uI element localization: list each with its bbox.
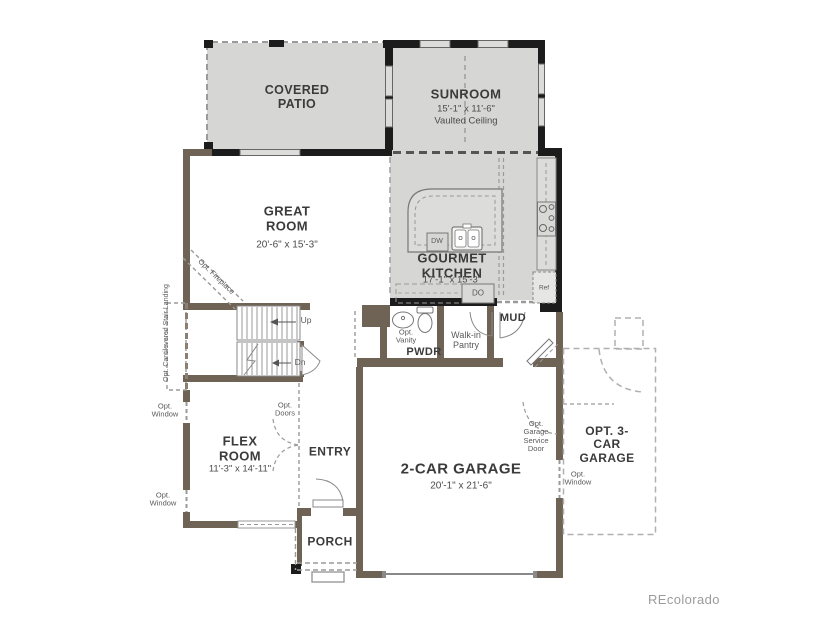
stair-dn-label: Dn xyxy=(295,358,306,368)
room-label-great-room: GREAT ROOM xyxy=(247,204,327,233)
room-label-covered-patio: COVERED PATIO xyxy=(251,83,343,111)
room-label-porch: PORCH xyxy=(307,535,352,548)
double-oven-label: DO xyxy=(472,290,484,299)
recolorado-watermark: REcolorado xyxy=(648,592,720,607)
note-sunroom-ceiling: Vaulted Ceiling xyxy=(434,117,497,128)
staircase xyxy=(237,306,300,376)
garage-door xyxy=(382,571,537,578)
floor-plan-drawing xyxy=(0,0,825,619)
dims-flex-room: 11'-3" x 14'-11" xyxy=(209,465,271,476)
annotation-opt-doors: Opt. Doors xyxy=(268,402,302,419)
room-label-2-car-garage: 2-CAR GARAGE xyxy=(401,462,522,479)
kitchen-island xyxy=(408,189,502,252)
annotation-opt-garage-service-door: Opt. Garage Service Door xyxy=(516,420,556,454)
room-label-mud: MUD xyxy=(500,312,526,324)
flex-window xyxy=(238,521,295,528)
dims-gourmet-kitchen: 17'-1" x 15'-3" xyxy=(423,276,481,287)
floor-plan: COVERED PATIO SUNROOM 15'-1" x 11'-6" Va… xyxy=(0,0,825,619)
kitchen-right-counter xyxy=(537,158,556,270)
room-label-opt-3-car-garage: OPT. 3-CAR GARAGE xyxy=(574,425,640,465)
annotation-opt-vanity: Opt. Vanity xyxy=(388,329,424,346)
annotation-opt-cantilevered-stair-landing: Opt. Cantilevered Stair Landing xyxy=(163,284,171,382)
refrigerator-label: Ref xyxy=(539,284,549,291)
room-label-sunroom: SUNROOM xyxy=(431,88,502,103)
opt-flex-doors xyxy=(273,419,299,471)
room-label-entry: ENTRY xyxy=(309,445,351,458)
room-label-pwdr: PWDR xyxy=(406,346,441,358)
dims-sunroom: 15'-1" x 11'-6" xyxy=(437,105,495,116)
dims-2-car-garage: 20'-1" x 21'-6" xyxy=(430,480,492,491)
annotation-opt-window-right: Opt. Window xyxy=(558,471,598,488)
room-label-walk-in-pantry: Walk-in Pantry xyxy=(441,330,491,350)
stair-up-label: Up xyxy=(301,316,312,326)
dims-great-room: 20'-6" x 15'-3" xyxy=(256,239,318,250)
annotation-opt-window-left-1: Opt. Window xyxy=(145,403,185,420)
annotation-opt-window-left-2: Opt. Window xyxy=(143,492,183,509)
room-label-flex-room: FLEX ROOM xyxy=(208,434,272,463)
dishwasher-label: DW xyxy=(431,238,443,246)
